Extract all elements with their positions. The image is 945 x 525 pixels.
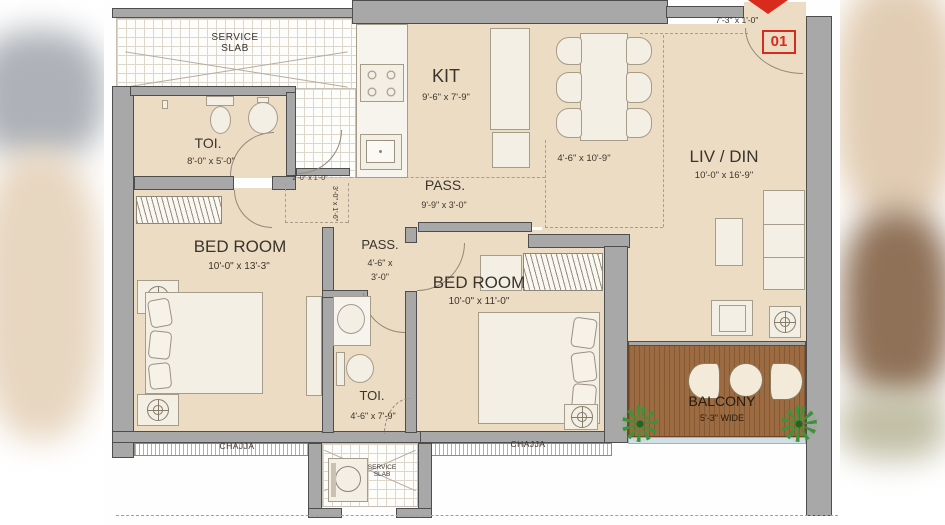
wardrobe — [523, 253, 603, 291]
refrigerator — [492, 132, 530, 168]
wall — [112, 8, 356, 18]
room-label-bed2: BED ROOM — [429, 273, 529, 292]
dim-label-entry-niche: 7'-3" x 1'-0" — [702, 16, 772, 26]
wall — [418, 443, 432, 516]
kitchen-stove-icon — [360, 64, 404, 102]
unit-number-badge: 01 — [762, 30, 796, 54]
dim-label-kitchen: 9'-6" x 7'-9" — [404, 93, 488, 104]
wall — [130, 86, 296, 96]
pillow — [570, 316, 598, 349]
shower-icon — [162, 100, 168, 109]
pillow — [148, 362, 173, 390]
dining-table — [580, 33, 628, 141]
room-label-livdin: LIV / DIN — [682, 147, 766, 166]
wall — [396, 508, 432, 518]
pillow — [147, 297, 174, 328]
balcony-table — [729, 363, 763, 397]
dim-label-dining: 4'-6" x 10'-9" — [547, 154, 621, 165]
dim-label-toi1: 8'-0" x 5'-0" — [169, 157, 253, 168]
toilet-icon — [336, 352, 345, 386]
blur-edge-left-gray — [0, 30, 105, 160]
dim-label-pass2-line2: 3'-0" — [357, 272, 403, 282]
blur-edge-right-brown — [842, 210, 945, 400]
chajja-label-left: CHAJJA — [197, 442, 277, 452]
ceiling-fan-icon — [147, 399, 169, 421]
room-label-bed1: BED ROOM — [175, 237, 305, 256]
kitchen-sink-icon — [360, 134, 402, 170]
dining-chair — [626, 37, 652, 65]
dim-label-bed1: 10'-0" x 13'-3" — [180, 261, 298, 272]
desk — [306, 296, 322, 396]
pillow — [570, 351, 597, 384]
room-label-pass2: PASS. — [353, 238, 407, 253]
wall — [308, 443, 322, 516]
dashed-line — [348, 183, 349, 223]
toilet-icon — [206, 96, 234, 106]
coffee-table — [715, 218, 743, 266]
plant-icon — [781, 406, 817, 442]
armchair — [711, 300, 753, 336]
wall — [806, 16, 832, 516]
dim-label-toi2: 4'-6" x 7'-9" — [337, 411, 409, 421]
blur-edge-right-olive — [838, 390, 945, 460]
wash-basin-icon — [248, 102, 278, 134]
dim-label-foyer-v: 3'-0" x 1'-6" — [326, 180, 338, 228]
dining-chair — [556, 37, 582, 65]
wall — [308, 508, 342, 518]
tap-icon — [257, 97, 269, 103]
wall — [286, 92, 296, 176]
plant-icon — [622, 406, 658, 442]
wall — [112, 86, 134, 458]
wall — [352, 0, 668, 24]
property-dashed-line — [116, 515, 838, 516]
ceiling-fan-icon — [774, 311, 796, 333]
room-label-toi2: TOI. — [352, 389, 392, 404]
dashed-line — [545, 140, 546, 228]
stove-burners — [361, 65, 403, 101]
dim-label-balcony: 5'-3" WIDE — [664, 413, 780, 423]
wall — [418, 222, 532, 232]
floor-plan-screenshot: 01 SERVICE SLAB TOI. 8'-0" x 5'-0" KIT 9… — [0, 0, 945, 525]
wall — [628, 341, 806, 346]
pillow — [148, 330, 173, 360]
dining-chair — [626, 108, 652, 138]
dashed-line — [545, 227, 663, 228]
dim-label-pass1: 9'-9" x 3'-0" — [409, 200, 479, 210]
dining-chair — [626, 72, 652, 103]
dining-chair — [556, 108, 582, 138]
wash-basin-icon — [337, 304, 365, 334]
dim-label-pass2-line1: 4'-6" x — [357, 258, 403, 268]
sofa — [763, 190, 805, 290]
blur-edge-left-beige — [0, 150, 100, 440]
service-slab-top-label: SERVICE SLAB — [180, 32, 290, 54]
dashed-line — [285, 222, 348, 223]
toilet-icon — [210, 106, 231, 134]
kitchen-tall-unit — [490, 28, 530, 130]
room-label-pass1: PASS. — [418, 178, 472, 194]
balcony-railing — [628, 437, 806, 444]
blur-edge-right-beige — [835, 0, 945, 220]
dining-chair — [556, 72, 582, 103]
toilet-icon — [346, 354, 374, 383]
dim-label-bed2: 10'-0" x 11'-0" — [435, 296, 523, 307]
wall — [134, 176, 234, 190]
room-label-toi1: TOI. — [186, 136, 230, 152]
room-label-kitchen: KIT — [419, 66, 473, 86]
chajja-label-right: CHAJJA — [488, 440, 568, 450]
wardrobe — [136, 196, 222, 224]
dashed-line — [663, 35, 664, 227]
ceiling-fan-icon — [571, 406, 593, 428]
dashed-line — [640, 33, 748, 34]
dim-label-livdin: 10'-0" x 16'-9" — [680, 171, 768, 182]
room-label-balcony: BALCONY — [664, 394, 780, 410]
dashed-line — [285, 183, 286, 223]
service-slab-bottom-label: SERVICE SLAB — [358, 464, 406, 479]
